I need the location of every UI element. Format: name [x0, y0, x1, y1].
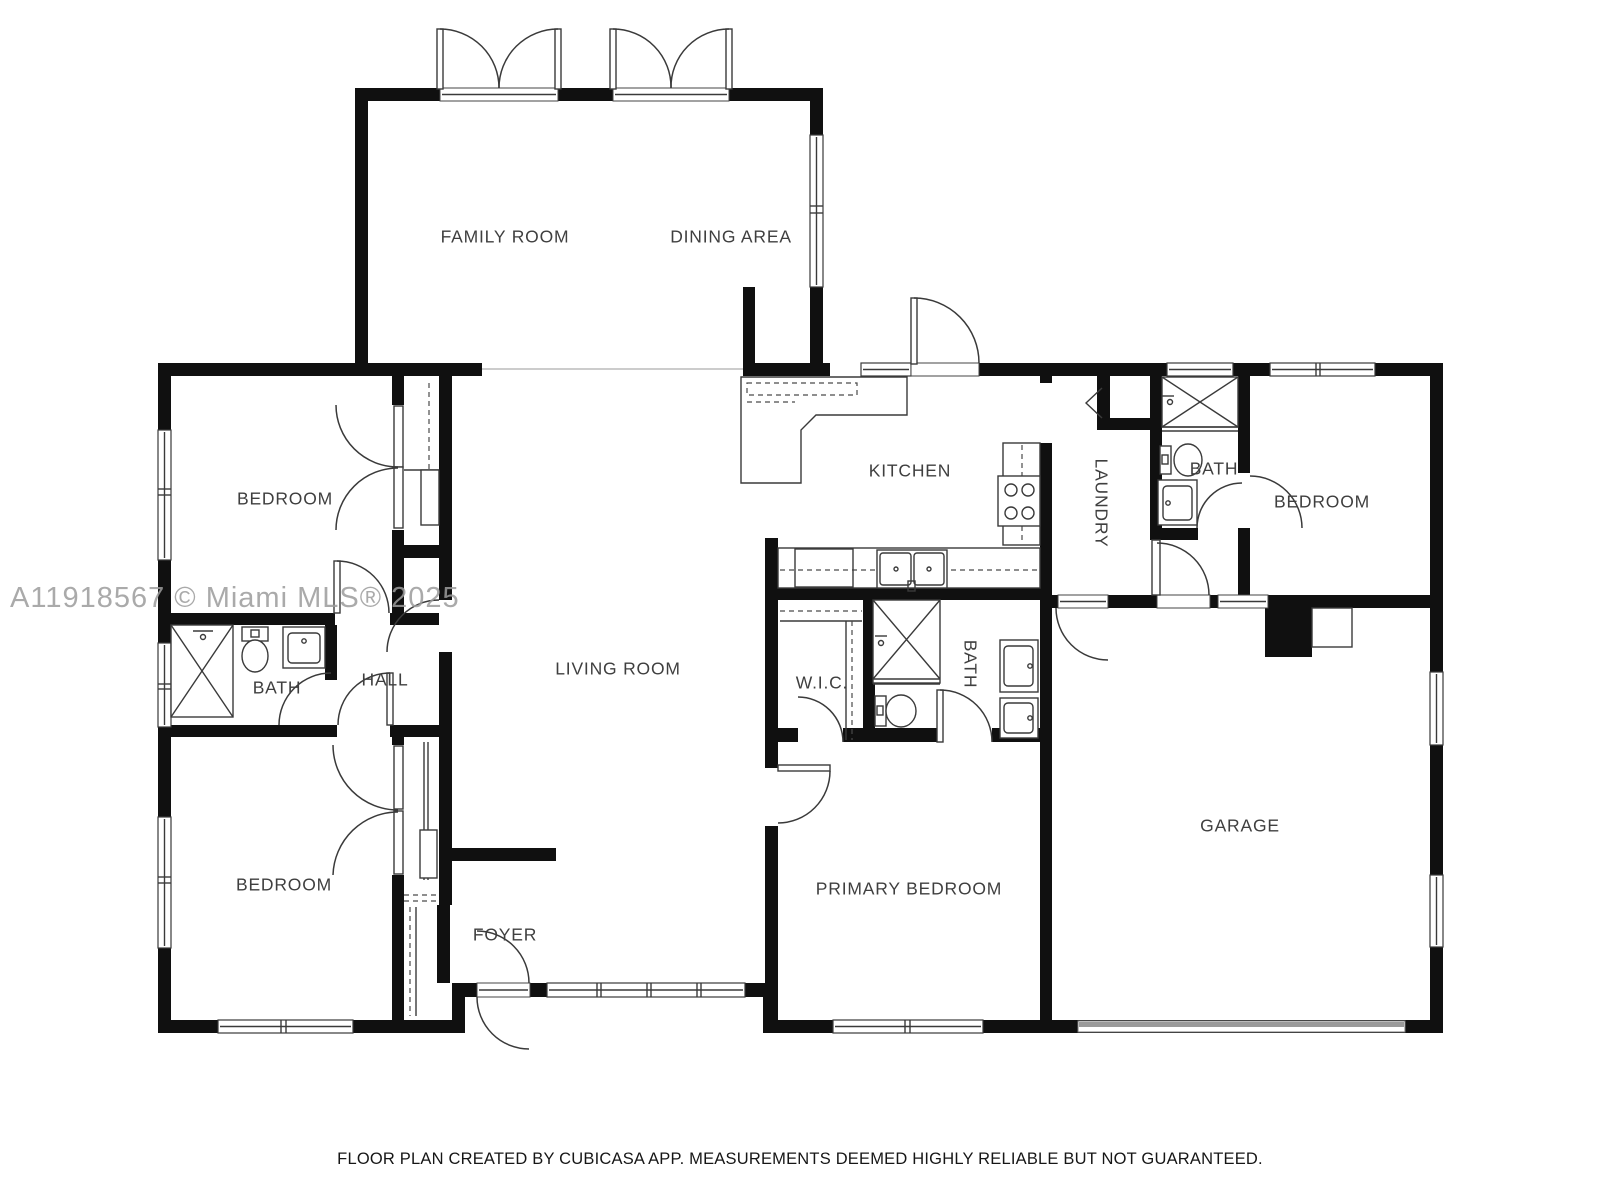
room-label-bedroom-ne: BEDROOM	[1274, 492, 1370, 512]
room-label-bedroom-nw: BEDROOM	[237, 489, 333, 509]
shower-primary	[873, 600, 940, 684]
room-label-bedroom-sw: BEDROOM	[236, 875, 332, 895]
window-bedroom-ne-north	[1270, 363, 1375, 376]
garage-shelf	[1312, 608, 1352, 647]
window-bath-west	[158, 643, 171, 727]
room-label-living-room: LIVING ROOM	[555, 659, 680, 679]
room-label-foyer: FOYER	[473, 925, 537, 945]
room-label-garage: GARAGE	[1200, 816, 1280, 836]
door-bath-ne	[1197, 483, 1242, 528]
room-label-wic: W.I.C.	[796, 673, 848, 693]
room-label-family-room: FAMILY ROOM	[441, 227, 570, 247]
double-door-bedroom-sw	[333, 745, 403, 875]
sink-ne	[1158, 480, 1197, 525]
closet-foyer	[410, 907, 416, 1016]
shower-ne	[1162, 377, 1238, 431]
mls-watermark: A11918567 © Miami MLS® 2025	[10, 582, 460, 615]
door-wic	[798, 697, 843, 742]
shower-west	[171, 625, 233, 717]
front-door	[477, 983, 530, 1049]
window-bath-ne-north	[1167, 363, 1233, 376]
floor-plan-page: FAMILY ROOMDINING AREABEDROOMKITCHENLAUN…	[0, 0, 1600, 1200]
closet-sw-strip	[404, 742, 439, 901]
closet-nw-strip	[404, 383, 439, 525]
room-label-kitchen: KITCHEN	[869, 461, 951, 481]
window-bedroom-sw-west	[158, 817, 171, 948]
double-door-bedroom-nw	[336, 405, 403, 530]
window-kitchen-north	[861, 363, 911, 376]
window-bedroom-nw-west	[158, 430, 171, 560]
french-door-family-room	[437, 29, 561, 101]
room-label-bath-primary: BATH	[960, 640, 980, 689]
door-vestibule	[1152, 540, 1210, 608]
toilet-primary	[875, 695, 916, 727]
doors	[279, 29, 1302, 1049]
french-door-dining-area	[610, 29, 732, 101]
garage-door	[1078, 1021, 1405, 1032]
room-label-laundry: LAUNDRY	[1091, 459, 1111, 548]
room-label-hall: HALL	[362, 670, 409, 690]
door-kitchen	[911, 298, 979, 376]
window-bedroom-sw-south	[218, 1020, 353, 1033]
kitchen-sink	[877, 550, 947, 591]
window-family-room-east	[810, 135, 823, 287]
window-garage-east-2	[1430, 875, 1443, 947]
window-primary-bedroom-south	[833, 1020, 983, 1033]
door-garage-service	[1056, 595, 1108, 660]
room-label-dining-area: DINING AREA	[670, 227, 792, 247]
disclaimer-text: FLOOR PLAN CREATED BY CUBICASA APP. MEAS…	[0, 1150, 1600, 1169]
room-label-bath-ne: BATH	[1190, 459, 1239, 479]
door-bath-primary	[937, 690, 992, 742]
window-garage-east-1	[1430, 672, 1443, 745]
room-label-bath-west: BATH	[253, 678, 302, 698]
toilet-west	[242, 627, 268, 672]
room-label-primary-bedroom: PRIMARY BEDROOM	[816, 879, 1002, 899]
opening-bedroom-ne-south	[1218, 595, 1268, 608]
sink-west	[283, 627, 325, 668]
stove	[998, 476, 1040, 526]
vanity-primary-1	[1000, 640, 1038, 692]
vanity-primary-2	[1000, 698, 1038, 738]
window-living-room-south	[547, 983, 745, 997]
door-primary-bedroom	[778, 765, 830, 823]
